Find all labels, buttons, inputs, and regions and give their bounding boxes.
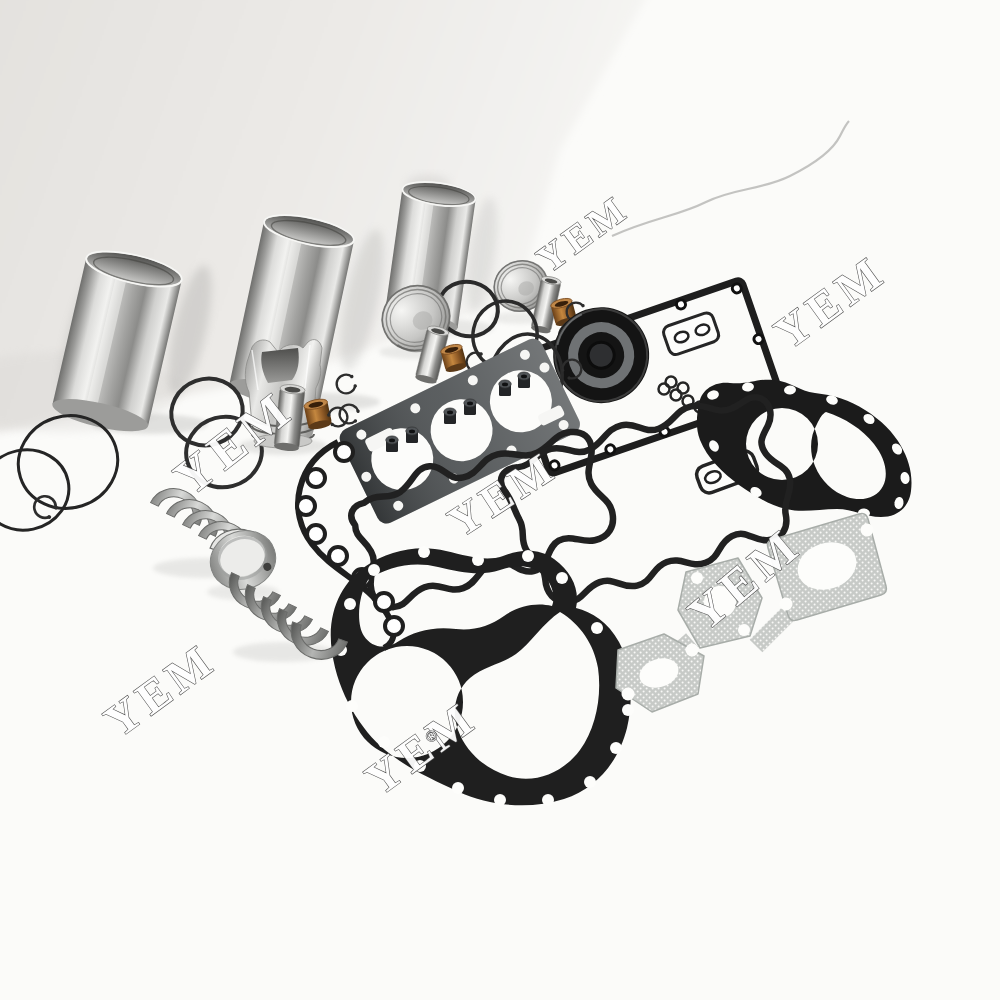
product-photo-engine-rebuild-kit: YEM YEM YEM YEM YEM YEM YEM ® <box>0 0 1000 1000</box>
piston-skirt-window <box>261 348 299 383</box>
photo-canvas: YEM YEM YEM YEM YEM YEM YEM ® <box>0 0 1000 1000</box>
